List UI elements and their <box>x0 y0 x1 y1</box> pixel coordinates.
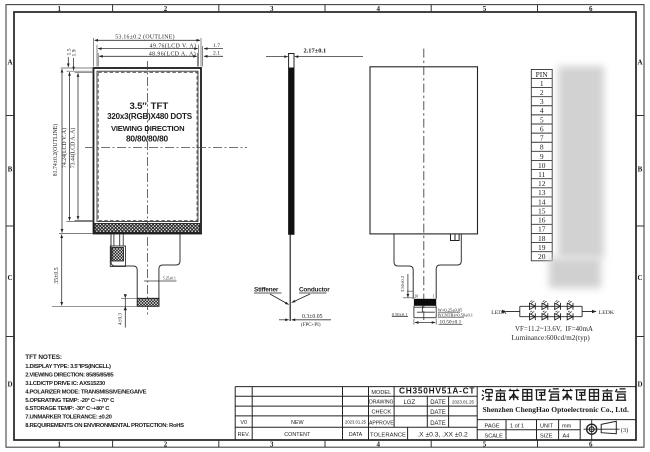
svg-text:3.5″: 3.5″ <box>130 101 148 112</box>
svg-text:UNIT: UNIT <box>540 423 554 429</box>
svg-text:3: 3 <box>540 97 544 106</box>
svg-text:2023.01.25: 2023.01.25 <box>345 420 367 425</box>
svg-text:81.74±0.2(OUTLINE): 81.74±0.2(OUTLINE) <box>52 124 59 177</box>
svg-text:1.DISPLAY TYPE: 3.5″IPS(INCEL: 1.DISPLAY TYPE: 3.5″IPS(INCELL) <box>25 364 111 370</box>
svg-text:49.76(LCD V. A): 49.76(LCD V. A) <box>150 43 197 50</box>
svg-text:13: 13 <box>538 188 546 197</box>
svg-text:.X ±0.3, .XX ±0.2: .X ±0.3, .XX ±0.2 <box>417 432 468 439</box>
svg-text:(3): (3) <box>621 427 628 434</box>
svg-text:6: 6 <box>540 124 544 133</box>
svg-text:16: 16 <box>538 216 546 225</box>
svg-text:DRAWING: DRAWING <box>369 400 393 406</box>
svg-text:4.POLARIZER MODE: TRANSMISSIVE: 4.POLARIZER MODE: TRANSMISSIVE/NEGAIVE <box>25 389 146 395</box>
svg-text:APPROVE: APPROVE <box>369 421 394 427</box>
svg-text:NEW: NEW <box>291 420 304 426</box>
svg-text:10: 10 <box>538 161 546 170</box>
svg-text:19: 19 <box>538 243 546 252</box>
svg-text:2.VIEWING DIRECTION: 85/85/85/: 2.VIEWING DIRECTION: 85/85/85/85 <box>25 372 114 378</box>
svg-text:1: 1 <box>540 79 544 88</box>
svg-text:3.50±0.2: 3.50±0.2 <box>400 275 405 292</box>
svg-text:TOLERANCE: TOLERANCE <box>370 432 406 438</box>
svg-text:LEDK: LEDK <box>599 310 615 316</box>
svg-text:P(CNTR)=0.50±0.1: P(CNTR)=0.50±0.1 <box>438 312 473 317</box>
svg-text:DATA: DATA <box>349 432 363 438</box>
svg-text:5: 5 <box>483 441 487 449</box>
svg-text:C: C <box>637 274 642 282</box>
svg-text:9: 9 <box>540 152 544 161</box>
svg-text:6: 6 <box>589 441 593 449</box>
svg-text:SIZE: SIZE <box>540 434 553 440</box>
svg-text:73.44(LCD A. A): 73.44(LCD A. A) <box>70 128 77 169</box>
svg-text:2: 2 <box>164 441 168 449</box>
svg-text:DATE: DATE <box>430 400 446 406</box>
svg-text:2: 2 <box>164 5 168 13</box>
svg-text:8: 8 <box>540 143 544 152</box>
svg-text:5: 5 <box>483 5 487 13</box>
svg-text:7: 7 <box>540 134 544 143</box>
svg-text:VIEWING DIRECTION: VIEWING DIRECTION <box>111 124 184 133</box>
svg-text:7.UNMARKER TOLERANCE: ±0.20: 7.UNMARKER TOLERANCE: ±0.20 <box>25 415 112 421</box>
svg-text:18: 18 <box>538 234 546 243</box>
svg-text:6: 6 <box>589 5 593 13</box>
svg-text:1: 1 <box>57 5 61 13</box>
svg-text:CH350HV51A-CT: CH350HV51A-CT <box>399 386 475 396</box>
svg-text:mm: mm <box>562 423 572 429</box>
svg-text:1: 1 <box>57 441 61 449</box>
svg-text:LGZ: LGZ <box>403 400 415 406</box>
svg-text:11: 11 <box>538 170 545 179</box>
svg-text:1.9: 1.9 <box>72 49 78 56</box>
svg-text:3: 3 <box>270 441 274 449</box>
svg-text:35±0.5: 35±0.5 <box>54 267 60 283</box>
svg-text:6.STORAGE TEMP: -30° C~+80° C: 6.STORAGE TEMP: -30° C~+80° C <box>25 406 110 412</box>
svg-text:53.16±0.2 (OUTLINE): 53.16±0.2 (OUTLINE) <box>115 34 175 41</box>
svg-text:3.LCD/CTP DRIVE IC: AXS15230: 3.LCD/CTP DRIVE IC: AXS15230 <box>25 381 106 387</box>
svg-text:MODEL: MODEL <box>371 390 391 396</box>
svg-text:CHECK: CHECK <box>372 409 392 415</box>
svg-text:Luminance:600cd/m2(typ): Luminance:600cd/m2(typ) <box>512 334 591 342</box>
svg-text:74.24(LCD V. A): 74.24(LCD V. A) <box>61 128 68 168</box>
svg-text:4±0.3: 4±0.3 <box>118 313 124 325</box>
svg-text:Stiffener: Stiffener <box>254 287 279 294</box>
svg-text:320x3(RGB)X480 DOTS: 320x3(RGB)X480 DOTS <box>107 112 193 121</box>
svg-text:4: 4 <box>376 441 380 449</box>
svg-text:5.OPERATING TEMP: -20° C~+70°: 5.OPERATING TEMP: -20° C~+70° C <box>25 398 115 404</box>
svg-text:15: 15 <box>538 207 546 216</box>
svg-text:C: C <box>7 274 12 282</box>
svg-text:2.1: 2.1 <box>213 51 220 57</box>
svg-text:14: 14 <box>538 197 546 206</box>
svg-text:17: 17 <box>538 225 546 234</box>
svg-text:12: 12 <box>538 179 546 188</box>
svg-text:DATE: DATE <box>430 421 446 427</box>
svg-text:LEDA: LEDA <box>491 310 507 316</box>
svg-text:V0: V0 <box>240 420 247 426</box>
svg-text:PAGE: PAGE <box>485 423 500 429</box>
svg-text:A: A <box>7 59 12 67</box>
svg-text:1 of 1: 1 of 1 <box>510 423 524 429</box>
svg-text:20: 20 <box>538 252 546 261</box>
svg-text:CONTENT: CONTENT <box>284 432 311 438</box>
svg-text:SCALE: SCALE <box>485 434 504 440</box>
svg-text:80/80/80/80: 80/80/80/80 <box>126 134 169 144</box>
svg-text:1: 1 <box>433 293 435 298</box>
svg-text:4: 4 <box>376 5 380 13</box>
svg-text:1.7: 1.7 <box>213 43 220 49</box>
svg-text:(FPC+PI): (FPC+PI) <box>301 323 321 328</box>
svg-text:2: 2 <box>540 88 544 97</box>
svg-text:Conductor: Conductor <box>299 287 330 294</box>
svg-text:Shenzhen ChengHao Optoelectron: Shenzhen ChengHao Optoelectronic Co., Lt… <box>483 405 629 414</box>
svg-text:2.17±0.1: 2.17±0.1 <box>304 47 327 54</box>
svg-text:5: 5 <box>540 115 544 124</box>
svg-text:3: 3 <box>270 5 274 13</box>
svg-text:B: B <box>638 166 643 174</box>
svg-text:4: 4 <box>540 106 544 115</box>
svg-text:PIN: PIN <box>536 70 549 79</box>
svg-text:A4: A4 <box>563 434 570 440</box>
svg-text:D: D <box>637 381 642 389</box>
svg-text:0.3±0.05: 0.3±0.05 <box>302 314 323 320</box>
svg-text:2023.01.25: 2023.01.25 <box>452 399 475 404</box>
svg-text:VF=11.2~13.6V, IF=40mA: VF=11.2~13.6V, IF=40mA <box>515 326 593 333</box>
svg-text:A: A <box>637 59 642 67</box>
svg-text:D: D <box>7 381 12 389</box>
svg-text:TFT NOTES:: TFT NOTES: <box>25 354 62 361</box>
svg-text:REV.: REV. <box>238 432 250 438</box>
svg-text:48.96(LCD A. A): 48.96(LCD A. A) <box>149 50 196 57</box>
svg-text:20: 20 <box>414 293 418 298</box>
svg-text:8.REQUIREMENTS ON ENVIRONMENTA: 8.REQUIREMENTS ON ENVIRONMENTAL PROTECTI… <box>25 423 184 429</box>
svg-text:5.25±0.1: 5.25±0.1 <box>163 276 176 280</box>
svg-text:TFT: TFT <box>151 101 169 112</box>
svg-text:DATE: DATE <box>430 410 446 416</box>
svg-text:0.50±0.1: 0.50±0.1 <box>392 312 408 317</box>
svg-text:B: B <box>8 166 13 174</box>
